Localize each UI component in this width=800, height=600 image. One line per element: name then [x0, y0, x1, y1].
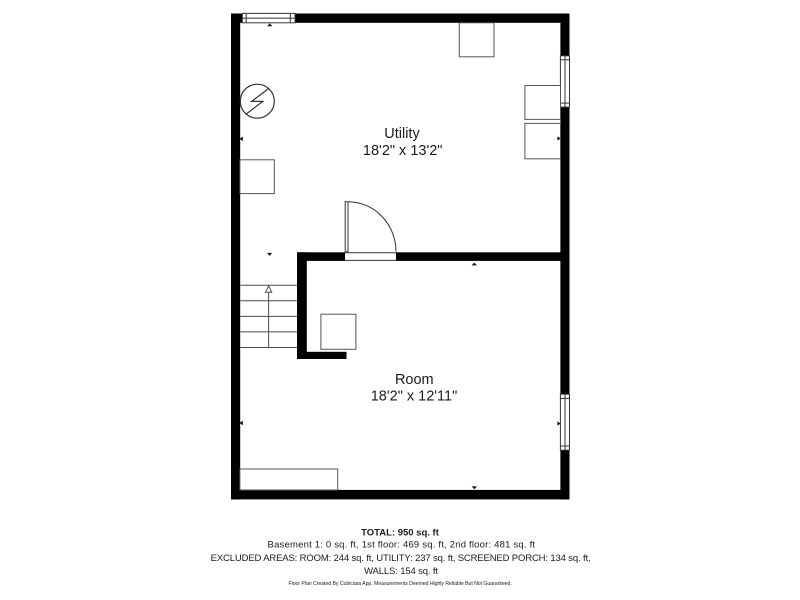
svg-text:WALLS: 154 sq. ft: WALLS: 154 sq. ft [364, 566, 438, 577]
svg-text:Basement 1: 0 sq. ft, 1st floo: Basement 1: 0 sq. ft, 1st floor: 469 sq.… [268, 539, 536, 550]
svg-text:Room: Room [395, 372, 434, 388]
svg-text:Utility: Utility [384, 126, 420, 142]
svg-text:18'2" x 13'2": 18'2" x 13'2" [363, 143, 443, 159]
svg-text:Floor Plan Created By Cubicasa: Floor Plan Created By Cubicasa App. Meas… [288, 581, 511, 587]
svg-text:18'2" x 12'11": 18'2" x 12'11" [371, 389, 458, 405]
svg-text:TOTAL: 950 sq. ft: TOTAL: 950 sq. ft [361, 527, 440, 538]
svg-text:EXCLUDED AREAS: ROOM: 244 sq.: EXCLUDED AREAS: ROOM: 244 sq. ft, UTILIT… [211, 553, 591, 564]
